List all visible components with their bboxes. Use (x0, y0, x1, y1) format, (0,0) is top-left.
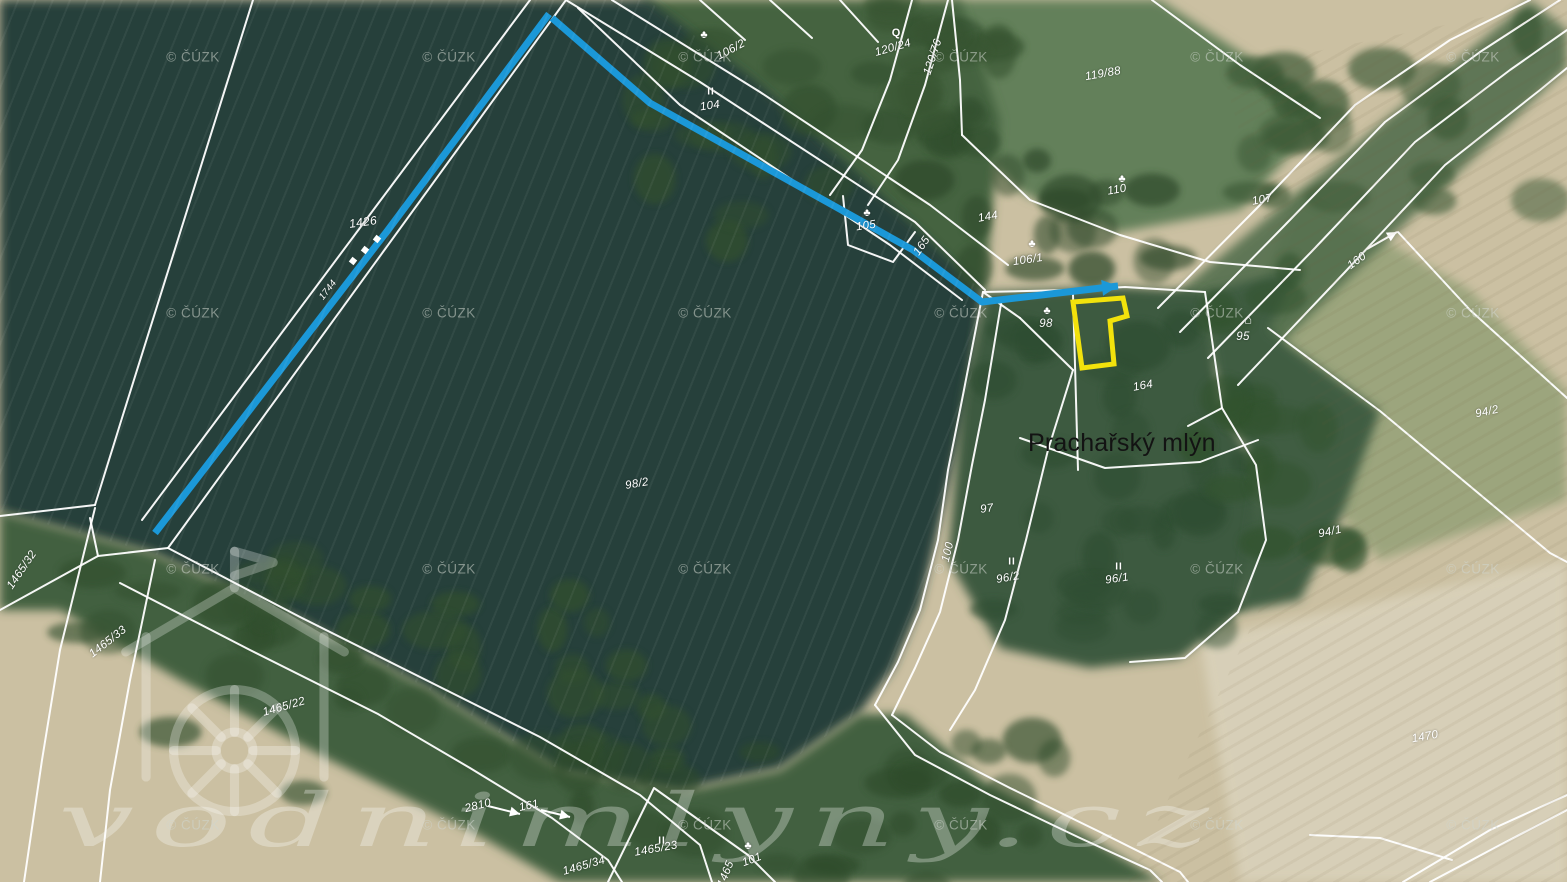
cuzk-copyright: © ČÚZK (678, 562, 731, 577)
cuzk-copyright: © ČÚZK (678, 306, 731, 321)
tree-blob (895, 160, 955, 200)
tree-blob (336, 611, 390, 648)
tree-blob (537, 607, 567, 652)
tree-blob (983, 774, 1037, 823)
tree-blob (832, 818, 892, 854)
tree-blob (140, 717, 202, 747)
cuzk-copyright: © ČÚZK (1190, 562, 1243, 577)
meadow-symbol-icon: II (658, 836, 666, 847)
parcel-label: 97 (980, 502, 995, 516)
cuzk-copyright: © ČÚZK (422, 50, 475, 65)
map-title: Prachařský mlýn (1028, 429, 1216, 458)
cuzk-copyright: © ČÚZK (1446, 50, 1499, 65)
tree-blob (895, 762, 949, 790)
tree-blob (1245, 280, 1307, 314)
tree-blob (1017, 823, 1043, 848)
tree-blob (1305, 181, 1370, 213)
tree-blob (939, 781, 982, 808)
tree-symbol-icon: ♣ (1118, 173, 1125, 185)
cuzk-copyright: © ČÚZK (1446, 306, 1499, 321)
tree-blob (889, 812, 916, 837)
tree-symbol-icon: ♣ (744, 840, 751, 852)
tree-blob (570, 789, 595, 823)
cuzk-copyright: © ČÚZK (422, 306, 475, 321)
tree-blob (1124, 173, 1180, 206)
tree-symbol-icon: ♣ (700, 29, 707, 41)
tree-blob (1034, 215, 1060, 254)
tree-blob (451, 737, 511, 773)
cuzk-copyright: © ČÚZK (1446, 818, 1499, 833)
meadow-symbol-icon: II (1115, 562, 1123, 573)
tree-blob (205, 653, 264, 698)
tree-blob (1409, 161, 1454, 189)
cuzk-copyright: © ČÚZK (166, 50, 219, 65)
tree-blob (193, 581, 256, 627)
tree-blob (1002, 718, 1061, 764)
cuzk-copyright: © ČÚZK (678, 818, 731, 833)
tree-blob (1428, 97, 1469, 140)
cuzk-copyright: © ČÚZK (678, 50, 731, 65)
tree-blob (385, 688, 439, 734)
cuzk-copyright: © ČÚZK (166, 562, 219, 577)
cuzk-copyright: © ČÚZK (934, 306, 987, 321)
tree-blob (634, 154, 676, 204)
tree-blob (1511, 179, 1567, 222)
tree-blob (880, 79, 941, 112)
cuzk-copyright: © ČÚZK (1190, 50, 1243, 65)
cuzk-copyright: © ČÚZK (166, 306, 219, 321)
cuzk-copyright: © ČÚZK (1190, 306, 1243, 321)
tree-blob (606, 650, 648, 682)
tree-blob (1252, 52, 1315, 94)
pasture-symbol-icon: Q (892, 27, 901, 39)
tree-blob (1055, 613, 1110, 643)
cuzk-copyright: © ČÚZK (422, 818, 475, 833)
cuzk-copyright: © ČÚZK (1190, 818, 1243, 833)
tree-blob (642, 705, 691, 746)
cuzk-copyright: © ČÚZK (934, 818, 987, 833)
cuzk-copyright: © ČÚZK (934, 562, 987, 577)
cuzk-copyright: © ČÚZK (166, 818, 219, 833)
tree-blob (550, 579, 590, 612)
tree-symbol-icon: ♣ (1028, 238, 1035, 250)
tree-blob (280, 780, 326, 805)
tree-blob (349, 586, 391, 613)
tree-blob (1068, 251, 1115, 287)
meadow-symbol-icon: II (707, 87, 715, 98)
tree-blob (547, 669, 604, 718)
tree-blob (1348, 48, 1416, 91)
tree-blob (584, 608, 610, 637)
parcel-label: 95 (1236, 331, 1249, 343)
tree-symbol-icon: ♣ (863, 207, 870, 219)
tree-blob (1094, 452, 1141, 501)
tree-blob (1239, 526, 1297, 559)
tree-blob (714, 201, 769, 229)
tree-blob (435, 652, 482, 697)
tree-blob (951, 730, 981, 757)
cuzk-copyright: © ČÚZK (934, 50, 987, 65)
cuzk-copyright: © ČÚZK (422, 562, 475, 577)
parcel-label: 98 (1039, 318, 1052, 330)
tree-blob (739, 742, 780, 763)
tree-blob (233, 560, 296, 585)
cuzk-copyright: © ČÚZK (1446, 562, 1499, 577)
meadow-symbol-icon: II (1008, 557, 1016, 568)
tree-blob (600, 743, 653, 791)
tree-blob (1117, 506, 1166, 534)
tree-blob (1412, 187, 1456, 214)
map-canvas[interactable]: vodnimlyny.cz Prachařský mlýn 1426174410… (0, 0, 1567, 882)
tree-symbol-icon: ♣ (1043, 305, 1050, 317)
tree-blob (1023, 149, 1051, 173)
tree-blob (763, 49, 822, 85)
tree-blob (402, 611, 466, 649)
map-drawing (0, 0, 1567, 882)
house-symbol-icon: ⌂ (1244, 312, 1252, 327)
tree-blob (1299, 403, 1337, 453)
tree-blob (318, 644, 362, 674)
tree-blob (970, 361, 1017, 400)
tree-blob (1124, 589, 1160, 624)
